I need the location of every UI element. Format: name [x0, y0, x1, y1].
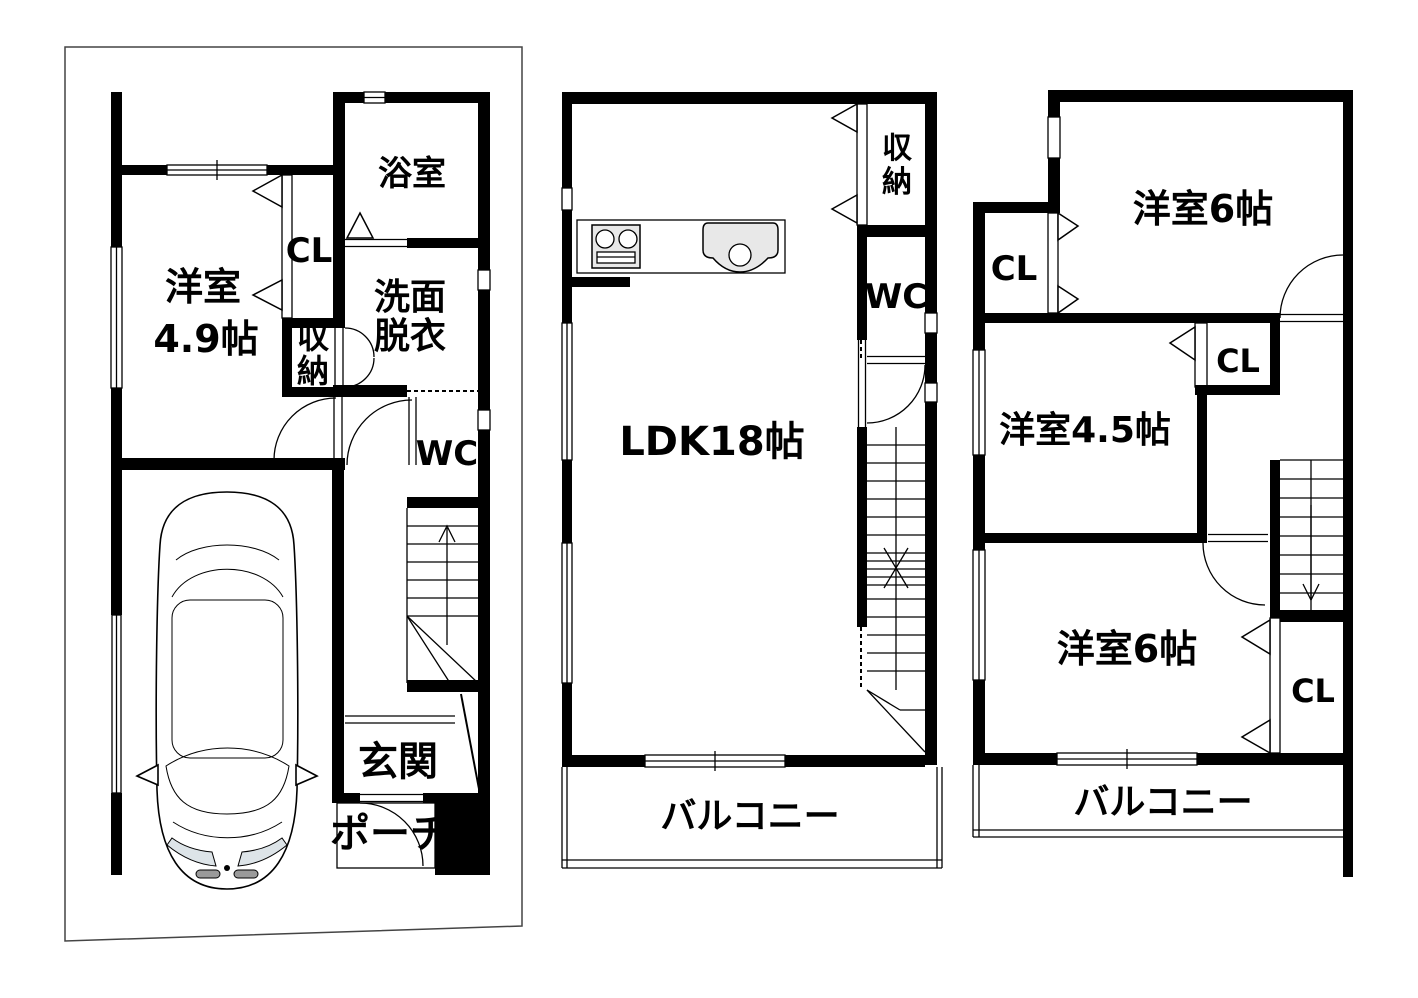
window [1048, 117, 1060, 158]
car-mirror [137, 765, 158, 785]
room-label-closet: CL [1291, 672, 1335, 710]
floor3-plan: 洋室6帖 CL 洋室4.5帖 CL 洋室6帖 CL バルコニー [973, 90, 1353, 877]
window [925, 383, 937, 402]
window [562, 188, 572, 210]
door-arc [345, 328, 374, 357]
room-label-storage: 収 [882, 131, 913, 166]
room-label-storage: 収 [297, 318, 329, 356]
room-label-western: 洋室 [165, 265, 241, 309]
room-label-western-mid: 洋室4.5帖 [999, 410, 1171, 451]
car-icon [137, 492, 317, 889]
closet-door-marker [253, 280, 282, 310]
closet-door-marker [832, 195, 857, 223]
front-door-leaf [461, 694, 479, 789]
closet-front [1048, 213, 1058, 313]
room-label-washroom: 洗面 [374, 277, 446, 318]
room-label-ldk: LDK18帖 [619, 419, 804, 465]
room-label-balcony: バルコニー [1073, 782, 1252, 823]
room-label-western-top: 洋室6帖 [1133, 187, 1273, 231]
floorplan-canvas: 浴室 CL 洋室 4.9帖 収 納 洗面 脱衣 WC 玄関 ポーチ [0, 0, 1418, 998]
room-label-bath: 浴室 [378, 154, 446, 194]
door-arc [345, 358, 374, 387]
room-label-wc: WC [416, 434, 478, 474]
room-label-storage: 納 [882, 165, 912, 200]
room-label-closet: CL [1216, 342, 1260, 380]
door-arc [1203, 543, 1265, 605]
door-arc [1280, 255, 1343, 318]
stairs-3f [1270, 460, 1343, 622]
door-arc [347, 400, 412, 465]
room-label-washroom: 脱衣 [374, 316, 446, 357]
room-label-wc: WC [865, 277, 927, 317]
room-label-closet: CL [286, 231, 333, 271]
closet-front [1270, 618, 1280, 753]
room-label-storage: 納 [297, 352, 329, 390]
floor2-plan: 収 納 WC LDK18帖 バルコニー [562, 92, 942, 868]
stairs-2f [857, 427, 925, 752]
stairs-1f [407, 508, 478, 683]
floor1-plan: 浴室 CL 洋室 4.9帖 収 納 洗面 脱衣 WC 玄関 ポーチ [65, 47, 522, 941]
door-arc [274, 398, 336, 460]
car-mirror [296, 765, 317, 785]
closet-front [1195, 323, 1207, 387]
room-label-western-bottom: 洋室6帖 [1057, 627, 1197, 671]
closet-door-marker [1170, 327, 1195, 360]
room-size-western: 4.9帖 [153, 317, 258, 361]
folding-door-marker [347, 213, 373, 238]
closet-door-marker [253, 175, 282, 207]
room-label-closet: CL [991, 249, 1038, 289]
floorplan-page: 浴室 CL 洋室 4.9帖 収 納 洗面 脱衣 WC 玄関 ポーチ [0, 0, 1418, 998]
closet-door-marker [1058, 286, 1078, 313]
kitchen-counter [577, 220, 785, 273]
closet-door-marker [1058, 213, 1078, 240]
closet-door-marker [1242, 620, 1270, 654]
door-arc [867, 365, 925, 423]
window [478, 410, 490, 430]
room-label-entrance: 玄関 [358, 739, 438, 785]
closet-front [857, 104, 867, 225]
room-label-balcony: バルコニー [660, 796, 839, 837]
window [478, 270, 490, 290]
room-label-porch: ポーチ [330, 811, 450, 857]
closet-door-marker [832, 104, 857, 132]
closet-door-marker [1242, 720, 1270, 753]
